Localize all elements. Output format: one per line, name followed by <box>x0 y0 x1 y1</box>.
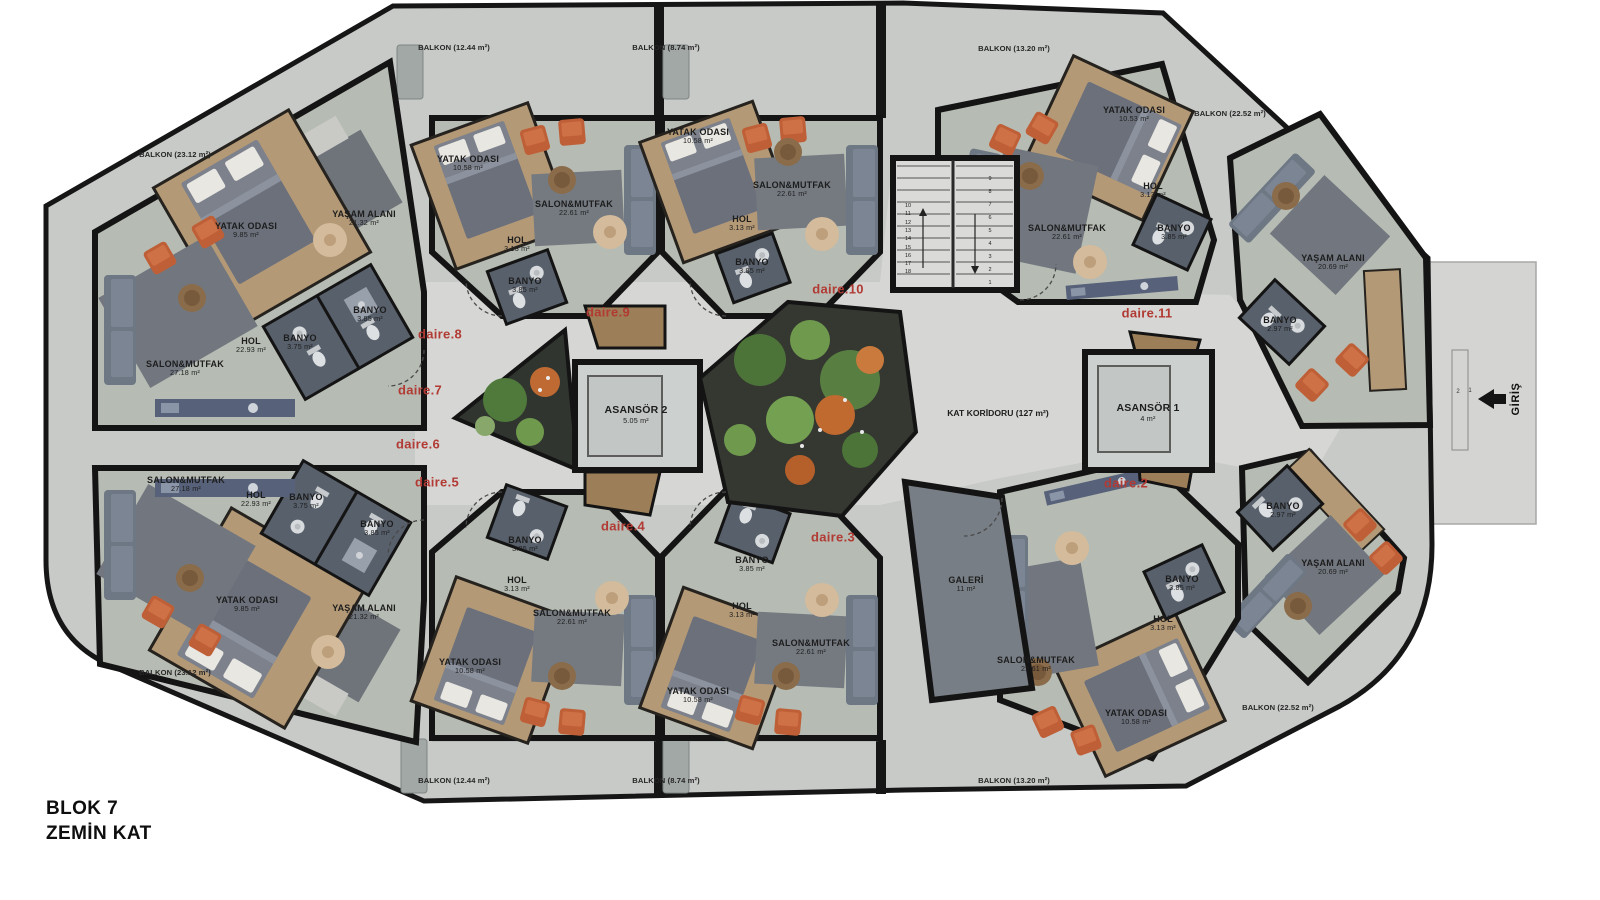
room-label: HOL3.13 m² <box>1150 614 1176 632</box>
apartment-number: daire.6 <box>396 438 440 453</box>
stair-step-number: 3 <box>988 254 991 260</box>
room-label: HOL22.93 m² <box>236 336 266 354</box>
stair-step-number: 15 <box>905 245 911 251</box>
room-label: BANYO3.85 m² <box>508 276 542 294</box>
balcony-label: BALKON (22.52 m²) <box>1194 110 1266 119</box>
room-label: HOL3.13 m² <box>504 235 530 253</box>
room-label: YATAK ODASI10.58 m² <box>667 127 729 145</box>
room-label: YATAK ODASI10.58 m² <box>1105 708 1167 726</box>
stair-step-number: 2 <box>988 267 991 273</box>
room-label: SALON&MUTFAK27.18 m² <box>146 359 224 377</box>
apartment-number: daire.2 <box>1104 477 1148 492</box>
room-label: BANYO2.97 m² <box>1263 315 1297 333</box>
stair-step-number: 10 <box>905 203 911 209</box>
room-label: HOL3.13 m² <box>1140 181 1166 199</box>
stair-step-number: 12 <box>905 220 911 226</box>
room-label: YAŞAM ALANI20.69 m² <box>1301 558 1365 576</box>
room-label: SALON&MUTFAK22.61 m² <box>772 638 850 656</box>
room-label: SALON&MUTFAK22.61 m² <box>535 199 613 217</box>
balcony-label: BALKON (22.52 m²) <box>1242 704 1314 713</box>
stair-step-number: 17 <box>905 261 911 267</box>
elevator-label: ASANSÖR 14 m² <box>1116 403 1179 423</box>
room-label: YATAK ODASI10.58 m² <box>439 657 501 675</box>
elevator-label: ASANSÖR 25.05 m² <box>604 405 667 425</box>
room-label: YAŞAM ALANI20.69 m² <box>1301 253 1365 271</box>
balcony-label: BALKON (13.20 m²) <box>978 777 1050 786</box>
apartment-number: daire.10 <box>812 283 864 298</box>
room-label: SALON&MUTFAK22.61 m² <box>533 608 611 626</box>
stair-step-number: 1 <box>988 280 991 286</box>
room-label: YAŞAM ALANI21.32 m² <box>332 603 396 621</box>
plan-title-floor: ZEMİN KAT <box>46 822 152 847</box>
stair-step-number: 5 <box>988 228 991 234</box>
stair-step-number: 6 <box>988 215 991 221</box>
balcony-label: BALKON (8.74 m²) <box>632 777 699 786</box>
entry-step-number: 1 <box>1468 388 1471 394</box>
room-label: HOL3.13 m² <box>729 601 755 619</box>
apartment-number: daire.5 <box>415 476 459 491</box>
stair-step-number: 13 <box>905 228 911 234</box>
apartment-number: daire.4 <box>601 520 645 535</box>
stair-step-number: 18 <box>905 269 911 275</box>
balcony-label: BALKON (23.12 m²) <box>139 669 211 678</box>
apartment-number: daire.7 <box>398 384 442 399</box>
stair-step-number: 8 <box>988 189 991 195</box>
stair-step-number: 14 <box>905 236 911 242</box>
labels-layer: BALKON (23.12 m²)BALKON (12.44 m²)BALKON… <box>0 0 1600 900</box>
room-label: BANYO3.85 m² <box>735 555 769 573</box>
balcony-label: BALKON (8.74 m²) <box>632 44 699 53</box>
stair-step-number: 9 <box>988 176 991 182</box>
room-label: BANYO3.85 m² <box>1157 223 1191 241</box>
apartment-number: daire.11 <box>1122 307 1173 322</box>
room-label: BANYO3.85 m² <box>1165 574 1199 592</box>
corridor-label: KAT KORİDORU (127 m²) <box>947 409 1049 419</box>
apartment-number: daire.8 <box>418 328 462 343</box>
room-label: YATAK ODASI10.58 m² <box>667 686 729 704</box>
stair-step-number: 7 <box>988 202 991 208</box>
stair-step-number: 11 <box>905 211 911 217</box>
room-label: HOL22.93 m² <box>241 490 271 508</box>
room-label: BANYO3.85 m² <box>353 305 387 323</box>
entry-step-number: 2 <box>1456 389 1459 395</box>
room-label: BANYO3.85 m² <box>735 257 769 275</box>
room-label: YAŞAM ALANI21.32 m² <box>332 209 396 227</box>
room-label: SALON&MUTFAK22.61 m² <box>753 180 831 198</box>
room-label: HOL3.13 m² <box>729 214 755 232</box>
room-label: SALON&MUTFAK22.61 m² <box>997 655 1075 673</box>
room-label: YATAK ODASI10.53 m² <box>1103 105 1165 123</box>
balcony-label: BALKON (23.12 m²) <box>139 151 211 160</box>
apartment-number: daire.9 <box>586 306 630 321</box>
balcony-label: BALKON (12.44 m²) <box>418 44 490 53</box>
apartment-number: daire.3 <box>811 531 855 546</box>
room-label: YATAK ODASI10.58 m² <box>437 154 499 172</box>
room-label: SALON&MUTFAK22.61 m² <box>1028 223 1106 241</box>
entrance-label: GİRİŞ <box>1510 383 1522 416</box>
stair-step-number: 4 <box>988 241 991 247</box>
room-label: BANYO3.85 m² <box>508 535 542 553</box>
room-label: HOL3.13 m² <box>504 575 530 593</box>
floor-plan-page: BALKON (23.12 m²)BALKON (12.44 m²)BALKON… <box>0 0 1600 900</box>
plan-title: BLOK 7 ZEMİN KAT <box>46 797 152 846</box>
room-label: YATAK ODASI9.85 m² <box>215 221 277 239</box>
stair-step-number: 16 <box>905 253 911 259</box>
gallery-label: GALERİ11 m² <box>948 575 983 593</box>
balcony-label: BALKON (13.20 m²) <box>978 45 1050 54</box>
room-label: BANYO2.97 m² <box>1266 501 1300 519</box>
room-label: BANYO3.75 m² <box>283 333 317 351</box>
room-label: BANYO3.85 m² <box>360 519 394 537</box>
room-label: BANYO3.75 m² <box>289 492 323 510</box>
plan-title-block: BLOK 7 <box>46 797 152 822</box>
room-label: SALON&MUTFAK27.18 m² <box>147 475 225 493</box>
room-label: YATAK ODASI9.85 m² <box>216 595 278 613</box>
balcony-label: BALKON (12.44 m²) <box>418 777 490 786</box>
